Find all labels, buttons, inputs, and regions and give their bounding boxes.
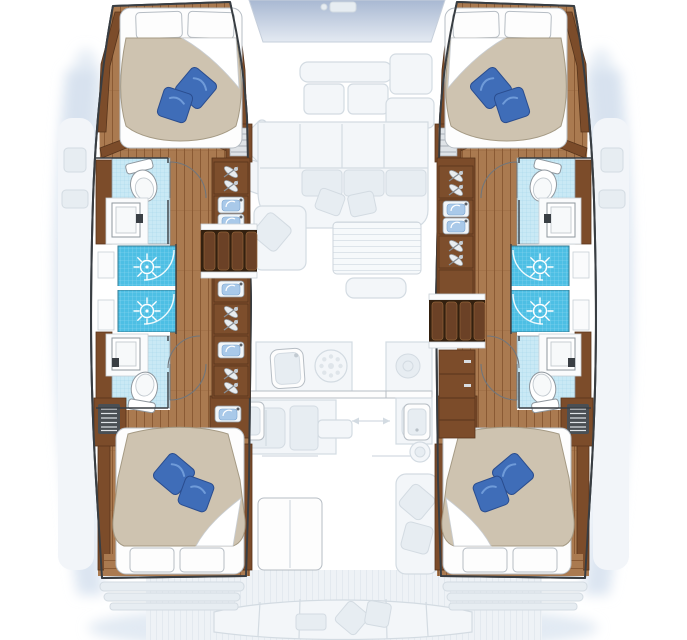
sofa-cushion bbox=[386, 170, 426, 196]
saloon-table bbox=[333, 222, 421, 274]
sofa-pillow bbox=[347, 191, 377, 218]
fore-lounge-backrest bbox=[300, 62, 392, 82]
port-steps bbox=[201, 224, 257, 278]
fore-bathroom bbox=[96, 158, 170, 246]
white-pillow-icon bbox=[180, 548, 224, 572]
aft-double-bed bbox=[113, 427, 245, 574]
ottoman bbox=[346, 278, 406, 298]
fore-lounge-cushion bbox=[304, 84, 344, 114]
faucet bbox=[112, 358, 119, 367]
saloon-faded bbox=[238, 54, 434, 298]
side-table bbox=[318, 420, 352, 438]
locker-unit bbox=[439, 270, 473, 294]
galley-faded bbox=[240, 342, 432, 456]
bench-pillow bbox=[296, 614, 326, 630]
white-pillow-icon bbox=[130, 548, 174, 572]
floorplan-canvas bbox=[0, 0, 687, 640]
deck-fitting bbox=[321, 4, 327, 10]
fore-lounge-cushion bbox=[348, 84, 388, 114]
nav-seat bbox=[390, 54, 432, 94]
fore-double-bed bbox=[120, 8, 242, 148]
bench-pillow bbox=[364, 600, 392, 628]
faucet bbox=[136, 214, 143, 223]
white-pillow-icon bbox=[188, 11, 235, 39]
white-pillow-icon bbox=[136, 11, 183, 39]
starboard-steps bbox=[429, 294, 485, 348]
deck-fitting bbox=[330, 2, 356, 12]
catamaran-floorplan bbox=[0, 0, 687, 640]
locker-cabinet bbox=[439, 350, 475, 438]
